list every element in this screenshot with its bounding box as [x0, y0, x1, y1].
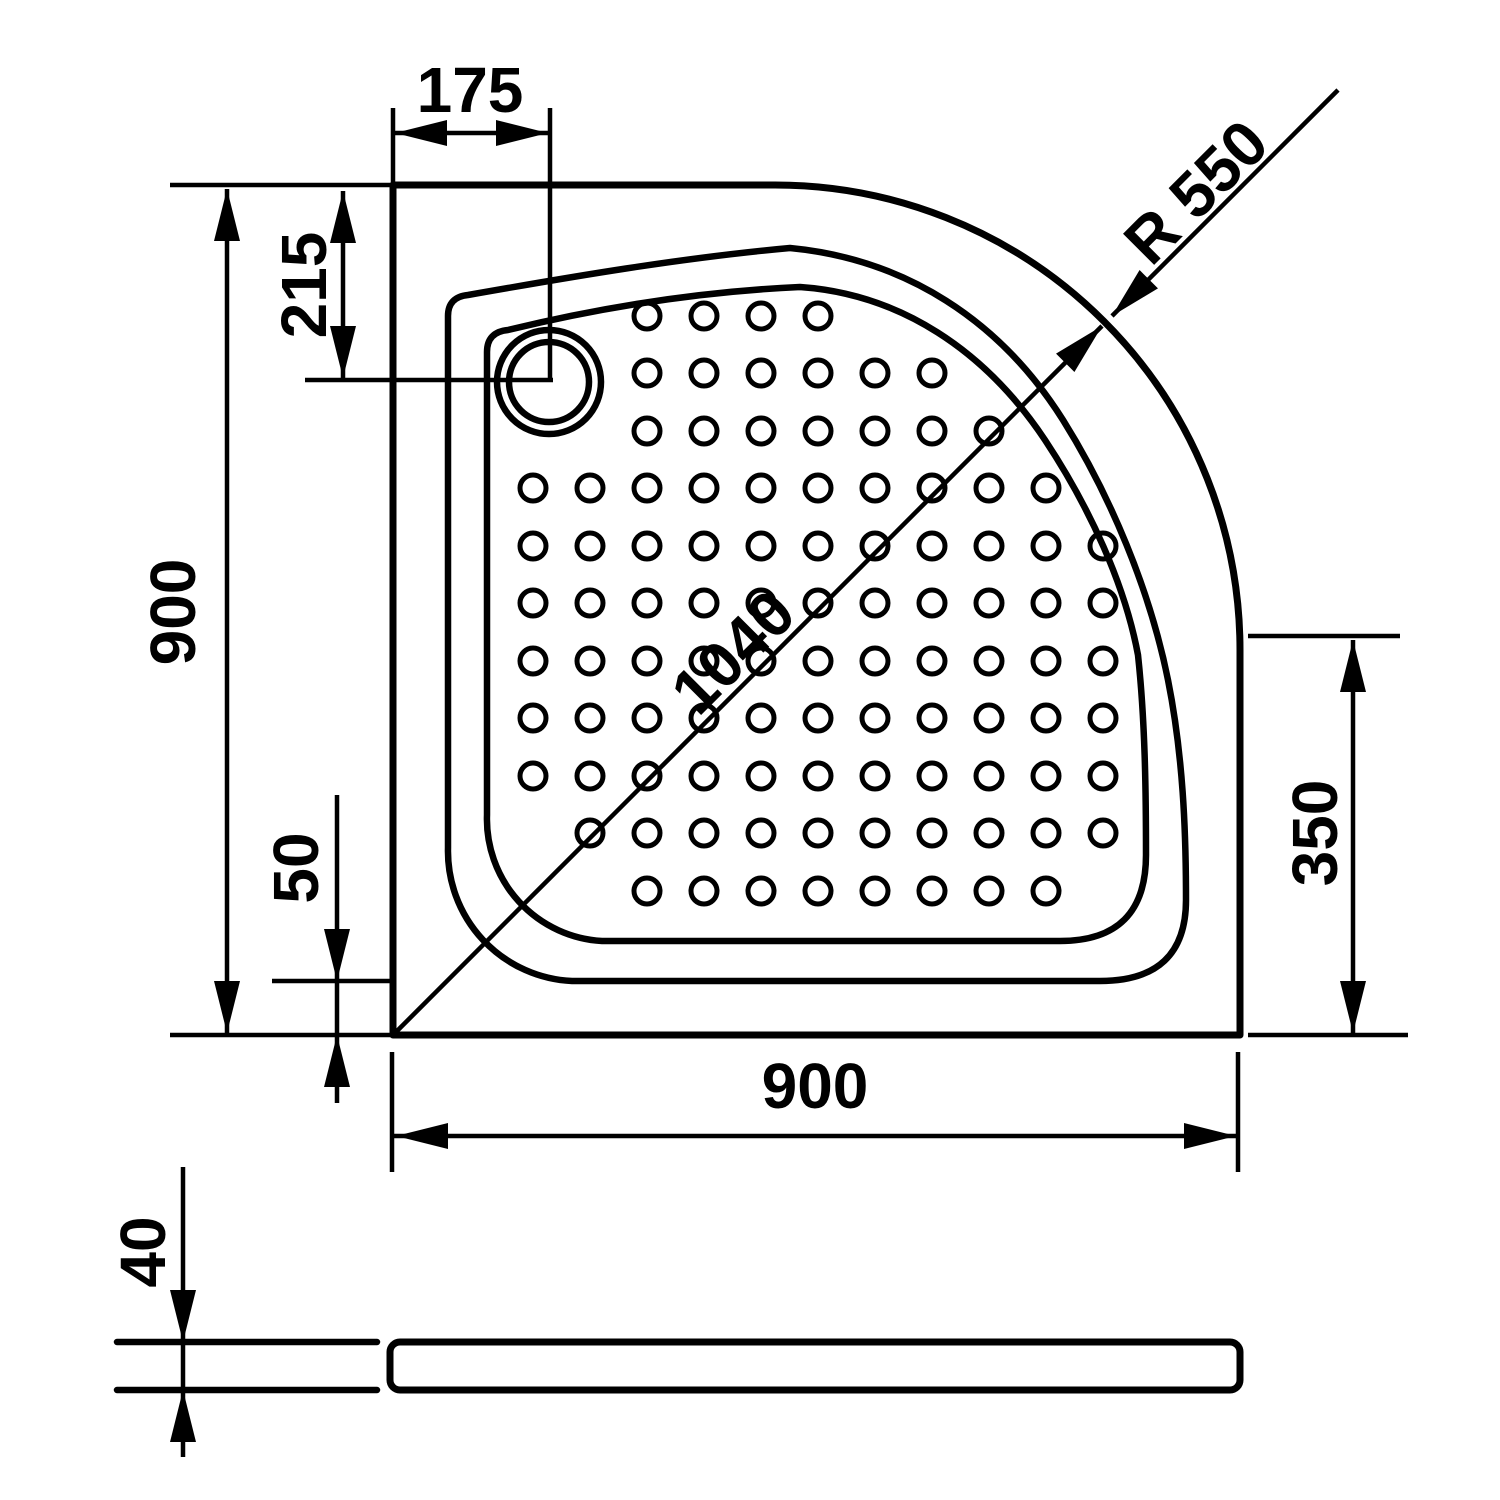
anti-slip-dot: [520, 648, 546, 674]
anti-slip-dot: [691, 360, 717, 386]
anti-slip-dot: [805, 705, 831, 731]
anti-slip-dot: [520, 705, 546, 731]
anti-slip-dot: [862, 820, 888, 846]
anti-slip-dot: [1090, 590, 1116, 616]
anti-slip-dot: [919, 648, 945, 674]
anti-slip-dot: [862, 590, 888, 616]
anti-slip-dot: [634, 418, 660, 444]
anti-slip-dot: [1033, 648, 1059, 674]
anti-slip-dot: [634, 533, 660, 559]
anti-slip-dot: [919, 360, 945, 386]
anti-slip-dot: [919, 820, 945, 846]
anti-slip-dot: [748, 763, 774, 789]
anti-slip-dot: [634, 705, 660, 731]
dim-label-40: 40: [107, 1216, 179, 1287]
anti-slip-dot: [976, 648, 1002, 674]
anti-slip-dot: [691, 590, 717, 616]
anti-slip-dot: [976, 763, 1002, 789]
anti-slip-dot: [577, 648, 603, 674]
anti-slip-dot: [862, 705, 888, 731]
anti-slip-dot: [577, 590, 603, 616]
dimension-arrowhead: [396, 1123, 448, 1149]
anti-slip-dot: [1033, 705, 1059, 731]
dim-label-175: 175: [417, 54, 524, 126]
anti-slip-dot: [520, 763, 546, 789]
anti-slip-dot: [862, 648, 888, 674]
dimension-arrowhead: [170, 1390, 196, 1442]
anti-slip-dot: [634, 878, 660, 904]
dim-label-50: 50: [260, 832, 332, 903]
anti-slip-dot: [919, 418, 945, 444]
anti-slip-dot: [520, 533, 546, 559]
anti-slip-dot: [976, 878, 1002, 904]
anti-slip-dot: [919, 533, 945, 559]
dim-label-1040: 1040: [657, 576, 809, 728]
dim-label-r550: R 550: [1110, 106, 1282, 278]
anti-slip-dot: [976, 475, 1002, 501]
anti-slip-dot: [691, 763, 717, 789]
anti-slip-dot: [919, 590, 945, 616]
anti-slip-dot: [805, 303, 831, 329]
anti-slip-dot: [748, 878, 774, 904]
anti-slip-dot: [1033, 590, 1059, 616]
anti-slip-dot: [805, 648, 831, 674]
anti-slip-dot: [862, 763, 888, 789]
anti-slip-dot: [691, 418, 717, 444]
dimension-arrowhead: [170, 1290, 196, 1342]
anti-slip-dot: [748, 418, 774, 444]
anti-slip-dot: [634, 590, 660, 616]
anti-slip-dot: [805, 475, 831, 501]
dimensions: 175 215 900 50 350 900 1040 R 550 40: [107, 54, 1408, 1457]
dimension-arrowhead: [214, 189, 240, 241]
anti-slip-dot: [1090, 648, 1116, 674]
anti-slip-dot: [748, 360, 774, 386]
anti-slip-dot: [1033, 820, 1059, 846]
anti-slip-dot: [520, 590, 546, 616]
anti-slip-dot: [577, 705, 603, 731]
anti-slip-dot: [1033, 533, 1059, 559]
anti-slip-dot: [862, 418, 888, 444]
shower-tray-drawing: 175 215 900 50 350 900 1040 R 550 40: [0, 0, 1500, 1500]
dimension-arrowhead: [324, 1035, 350, 1087]
anti-slip-dots: [520, 303, 1116, 904]
anti-slip-dot: [919, 878, 945, 904]
anti-slip-dot: [691, 878, 717, 904]
dimension-arrowheads: [170, 120, 1366, 1442]
anti-slip-dot: [634, 820, 660, 846]
anti-slip-dot: [805, 360, 831, 386]
anti-slip-dot: [691, 303, 717, 329]
anti-slip-dot: [919, 705, 945, 731]
anti-slip-dot: [862, 360, 888, 386]
anti-slip-dot: [1033, 475, 1059, 501]
anti-slip-dot: [1090, 705, 1116, 731]
anti-slip-dot: [862, 475, 888, 501]
anti-slip-dot: [634, 360, 660, 386]
dim-label-350: 350: [1279, 780, 1351, 887]
dimension-arrowhead: [1340, 981, 1366, 1033]
anti-slip-dot: [577, 533, 603, 559]
anti-slip-dot: [805, 820, 831, 846]
side-view: [117, 1342, 1240, 1390]
anti-slip-dot: [748, 303, 774, 329]
anti-slip-dot: [691, 820, 717, 846]
anti-slip-dot: [805, 533, 831, 559]
anti-slip-dot: [976, 820, 1002, 846]
anti-slip-dot: [691, 533, 717, 559]
anti-slip-dot: [1033, 763, 1059, 789]
anti-slip-dot: [634, 475, 660, 501]
dimension-arrowhead: [1184, 1123, 1236, 1149]
anti-slip-dot: [577, 820, 603, 846]
side-profile-body: [390, 1342, 1240, 1390]
technical-drawing-page: 175 215 900 50 350 900 1040 R 550 40: [0, 0, 1500, 1500]
dim-label-900-left: 900: [137, 559, 209, 666]
anti-slip-dot: [748, 475, 774, 501]
dim-label-215: 215: [268, 232, 340, 339]
dimension-arrowhead: [1340, 640, 1366, 692]
anti-slip-dot: [919, 763, 945, 789]
anti-slip-dot: [1090, 820, 1116, 846]
anti-slip-dot: [748, 533, 774, 559]
anti-slip-dot: [976, 590, 1002, 616]
anti-slip-dot: [862, 878, 888, 904]
anti-slip-dot: [634, 763, 660, 789]
anti-slip-dot: [634, 648, 660, 674]
anti-slip-dot: [1090, 763, 1116, 789]
anti-slip-dot: [1033, 878, 1059, 904]
anti-slip-dot: [805, 763, 831, 789]
anti-slip-dot: [577, 475, 603, 501]
dimension-arrowhead: [214, 981, 240, 1033]
anti-slip-dot: [976, 533, 1002, 559]
dim-label-900-bottom: 900: [762, 1050, 869, 1122]
anti-slip-dot: [577, 763, 603, 789]
side-profile-reference-lines: [117, 1342, 377, 1390]
dimension-arrowhead: [324, 929, 350, 981]
anti-slip-dot: [805, 878, 831, 904]
anti-slip-dot: [520, 475, 546, 501]
anti-slip-dot: [976, 705, 1002, 731]
anti-slip-dot: [805, 418, 831, 444]
anti-slip-dot: [634, 303, 660, 329]
anti-slip-dot: [748, 705, 774, 731]
anti-slip-dot: [691, 475, 717, 501]
anti-slip-dot: [748, 820, 774, 846]
